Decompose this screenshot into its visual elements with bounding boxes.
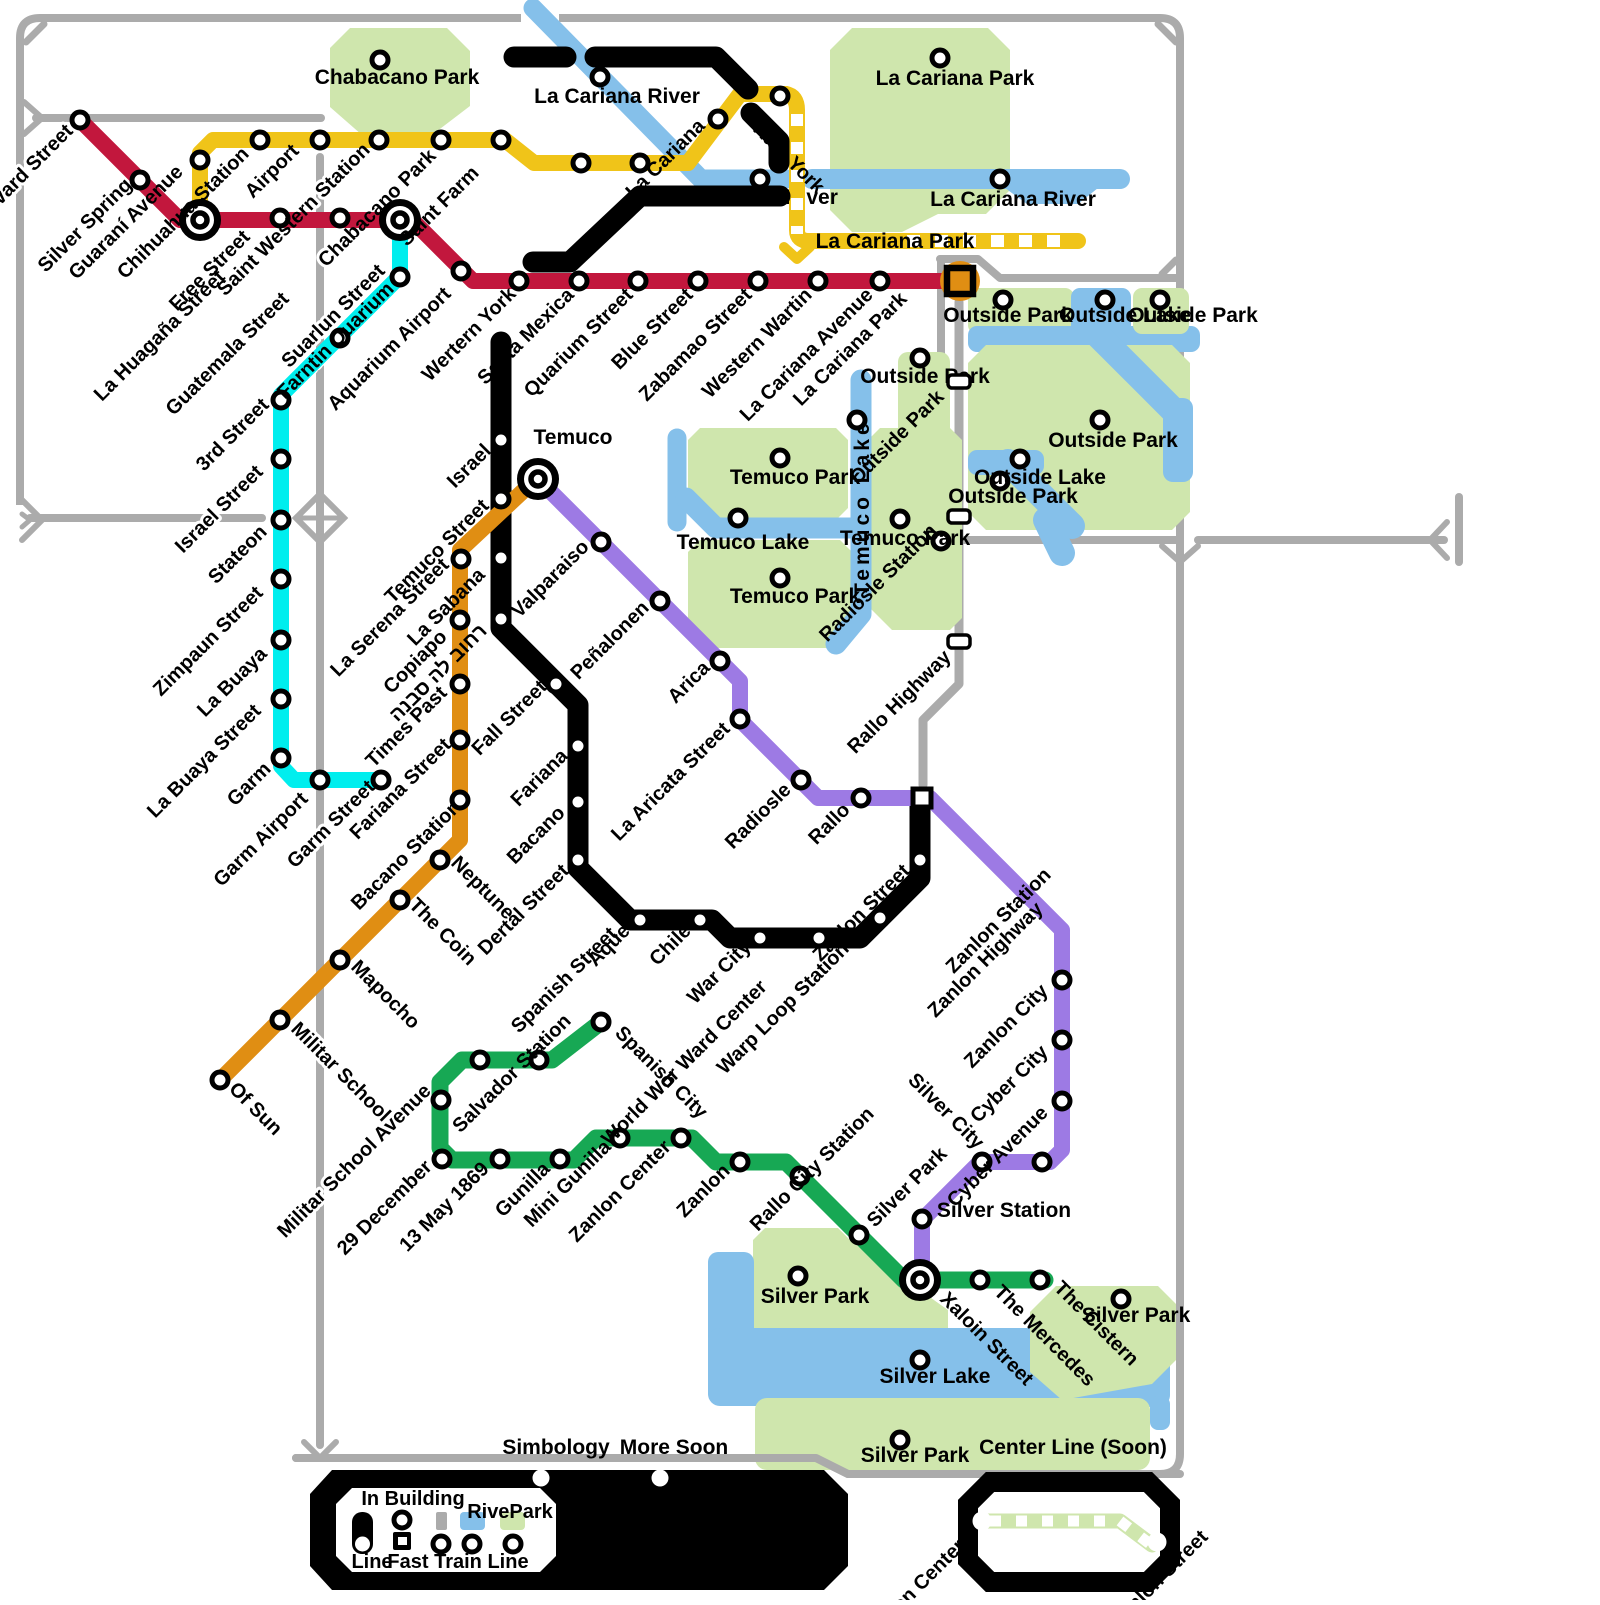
svg-text:Temuco Lake: Temuco Lake — [851, 419, 874, 596]
svg-text:More Soon: More Soon — [620, 1436, 729, 1459]
svg-text:Outside Park: Outside Park — [1048, 429, 1178, 452]
svg-text:Silver Station: Silver Station — [937, 1199, 1071, 1222]
svg-text:RivePark: RivePark — [467, 1501, 553, 1523]
svg-text:Silver Park: Silver Park — [1082, 1304, 1191, 1327]
svg-text:Outside Park: Outside Park — [948, 485, 1078, 508]
svg-text:La Cariana River: La Cariana River — [930, 188, 1096, 211]
svg-text:Outside Park: Outside Park — [943, 304, 1073, 327]
svg-text:Silver Park: Silver Park — [761, 1285, 870, 1308]
svg-text:Temuco Park: Temuco Park — [730, 466, 861, 489]
svg-text:Chabacano Park: Chabacano Park — [315, 66, 480, 89]
svg-text:Line: Line — [351, 1551, 392, 1573]
svg-text:Fast Train Line: Fast Train Line — [387, 1551, 528, 1573]
svg-text:Simbology: Simbology — [502, 1436, 610, 1459]
svg-text:Temuco Lake: Temuco Lake — [677, 531, 810, 554]
svg-text:Silver Lake: Silver Lake — [880, 1365, 991, 1388]
svg-text:Center Line (Soon): Center Line (Soon) — [979, 1436, 1167, 1459]
svg-text:Silver Park: Silver Park — [861, 1444, 970, 1467]
svg-text:In Building: In Building — [361, 1488, 464, 1510]
svg-text:La Cariana Park: La Cariana Park — [816, 230, 975, 253]
svg-text:Temuco: Temuco — [534, 426, 613, 449]
svg-text:Temuco Park: Temuco Park — [730, 585, 861, 608]
svg-text:Outside Park: Outside Park — [1128, 304, 1258, 327]
svg-text:La Cariana Park: La Cariana Park — [876, 67, 1035, 90]
svg-text:La Cariana River: La Cariana River — [534, 85, 700, 108]
